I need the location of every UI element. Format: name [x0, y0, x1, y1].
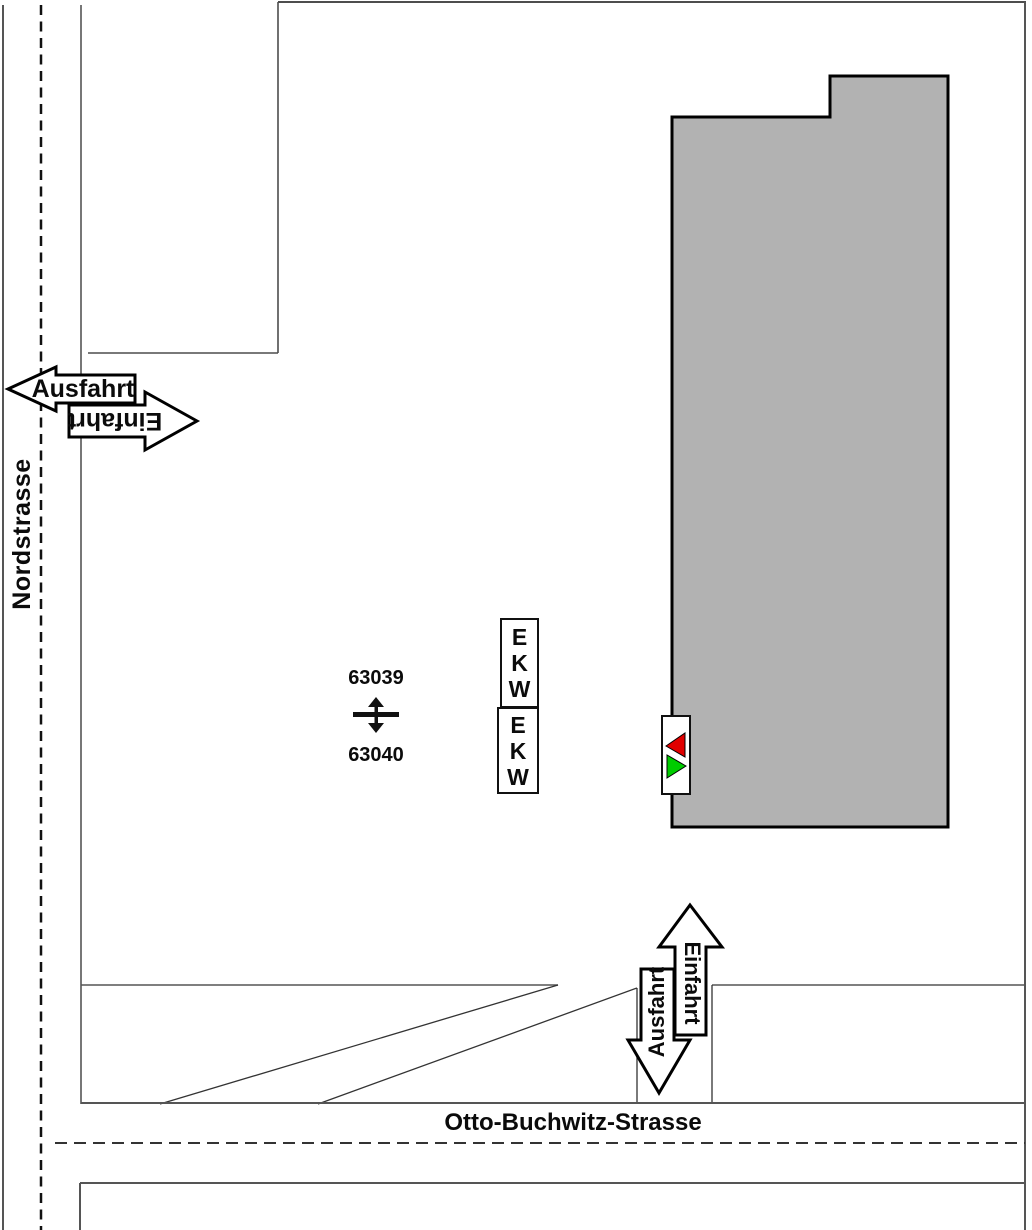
driveway-diagonal-west [160, 985, 558, 1104]
lower-entry-arrow-label: Einfahrt [679, 918, 705, 1048]
south-boundary-lines [81, 985, 1025, 1104]
ekw-letter: E [512, 624, 527, 650]
ekw-box-bottom: E K W [497, 707, 539, 794]
otto-buchwitz-strasse-label: Otto-Buchwitz-Strasse [420, 1109, 726, 1137]
lower-exit-arrow-label: Ausfahrt [644, 947, 670, 1077]
pump-id-top: 63039 [321, 667, 431, 690]
signal-housing [662, 716, 690, 794]
site-plan: Nordstrasse Otto-Buchwitz-Strasse Ausfah… [0, 0, 1032, 1230]
upper-entry-arrow-label: Einfahrt [40, 406, 190, 436]
plan-drawing [0, 0, 1032, 1230]
ekw-box-top: E K W [500, 618, 539, 708]
ekw-letter: E [510, 712, 525, 738]
traffic-signal [662, 716, 690, 794]
ekw-letter: W [507, 764, 529, 790]
upper-exit-arrow-label: Ausfahrt [13, 375, 153, 403]
ekw-letter: W [509, 676, 531, 702]
nordstrasse-label: Nordstrasse [8, 449, 36, 619]
pump-id-bottom: 63040 [321, 744, 431, 767]
driveway-diagonal-east [318, 988, 637, 1104]
pump-island-icon [353, 697, 399, 733]
ekw-letter: K [511, 650, 528, 676]
ekw-letter: K [510, 738, 527, 764]
building-shape [672, 76, 948, 827]
